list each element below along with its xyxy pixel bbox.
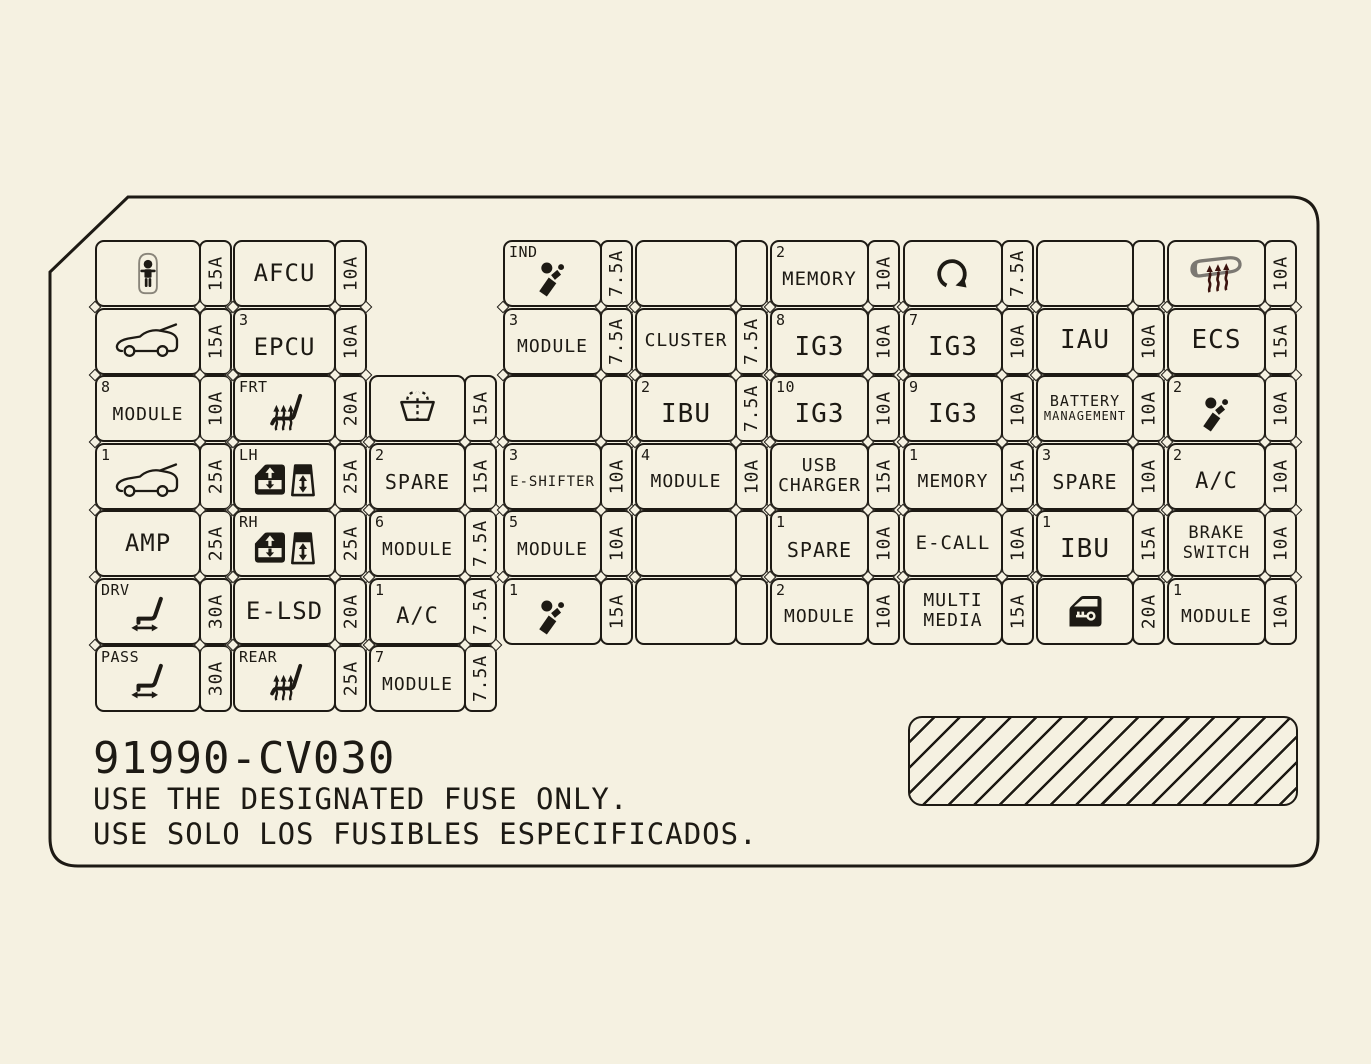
fuse-slot-r1c1: [95, 240, 201, 307]
fuse-amp-r6c2: 20A: [334, 578, 367, 645]
fuse-prefix: 2: [776, 243, 786, 261]
fuse-amp-r6c1: 30A: [199, 578, 232, 645]
airbag-icon: [1169, 377, 1264, 440]
fuse-slot-r5c2: RH: [233, 510, 336, 577]
fuse-label-line: BATTERY: [1050, 393, 1120, 410]
fuse-label: SPARE: [371, 445, 464, 508]
fuse-amp-r4c9: 10A: [1264, 443, 1297, 510]
fuse-amp-r3c5: 7.5A: [735, 375, 768, 442]
fuse-label-line: SWITCH: [1183, 544, 1250, 563]
fuse-prefix: 1: [1042, 513, 1052, 531]
fuse-label-line: MODULE: [382, 675, 453, 695]
fuse-amp-r5c1: 25A: [199, 510, 232, 577]
fuse-prefix: IND: [509, 243, 538, 261]
fuse-prefix: 3: [1042, 446, 1052, 464]
fuse-amp-value: 25A: [340, 526, 361, 562]
fuse-slot-r1c6: 2MEMORY: [770, 240, 869, 307]
fuse-prefix: 10: [776, 378, 795, 396]
fuse-amp-r3c1: 10A: [199, 375, 232, 442]
fuse-prefix: 1: [509, 581, 519, 599]
fuse-amp-value: 7.5A: [470, 520, 491, 567]
fuse-amp-value: 7.5A: [606, 250, 627, 297]
fuse-amp-value: 10A: [873, 256, 894, 292]
fuse-slot-r2c7: 7IG3: [903, 308, 1003, 375]
car-tailgate-icon: [97, 445, 199, 508]
fuse-prefix: LH: [239, 446, 258, 464]
fuse-amp-r4c6: 15A: [867, 443, 900, 510]
fuse-label: SPARE: [1038, 445, 1132, 508]
fuse-slot-r5c9: BRAKESWITCH: [1167, 510, 1266, 577]
fuse-label-line: E-CALL: [916, 533, 991, 554]
fuse-slot-r1c2: AFCU: [233, 240, 336, 307]
fuse-prefix: 7: [375, 648, 385, 666]
fuse-label: USBCHARGER: [772, 445, 867, 508]
fuse-amp-r7c3: 7.5A: [464, 645, 497, 712]
fuse-amp-value: 15A: [205, 323, 226, 359]
fuse-amp-r4c2: 25A: [334, 443, 367, 510]
fuse-slot-r4c5: 4MODULE: [635, 443, 737, 510]
fuse-label-line: IBU: [1060, 535, 1110, 564]
fuse-label-line: CHARGER: [778, 476, 861, 496]
fuse-label-line: E-SHIFTER: [510, 475, 595, 491]
fuse-label: IG3: [905, 377, 1001, 440]
fuse-amp-r2c5: 7.5A: [735, 308, 768, 375]
fuse-label-line: IG3: [928, 400, 978, 429]
fuse-amp-value: 15A: [1270, 323, 1291, 359]
fuse-slot-r6c9: 1MODULE: [1167, 578, 1266, 645]
hatched-placeholder: [908, 716, 1298, 806]
fuse-amp-r5c9: 10A: [1264, 510, 1297, 577]
fuse-label: IBU: [637, 377, 735, 440]
fuse-label: ECS: [1169, 310, 1264, 373]
fuse-amp-r4c4: 10A: [600, 443, 633, 510]
fuse-slot-r3c2: FRT: [233, 375, 336, 442]
fuse-label: IG3: [772, 310, 867, 373]
fuse-label: AMP: [97, 512, 199, 575]
fuse-slot-r5c7: E-CALL: [903, 510, 1003, 577]
fuse-slot-r3c5: 2IBU: [635, 375, 737, 442]
fuse-slot-r1c4: IND: [503, 240, 602, 307]
fuse-label: MODULE: [772, 580, 867, 643]
fuse-amp-value: 7.5A: [470, 587, 491, 634]
notice-es: USE SOLO LOS FUSIBLES ESPECIFICADOS.: [93, 817, 758, 851]
fuse-slot-r5c8: 1IBU: [1036, 510, 1134, 577]
fuse-slot-empty-r6c5: [635, 578, 737, 645]
fuse-amp-r3c6: 10A: [867, 375, 900, 442]
fuse-label: MODULE: [505, 512, 600, 575]
fuse-amp-r4c8: 10A: [1132, 443, 1165, 510]
fuse-slot-r7c1: PASS: [95, 645, 201, 712]
fuse-label: A/C: [371, 580, 464, 643]
fuse-prefix: 8: [776, 311, 786, 329]
fuse-amp-r3c2: 20A: [334, 375, 367, 442]
fuse-slot-r7c3: 7MODULE: [369, 645, 466, 712]
fuse-label: IG3: [905, 310, 1001, 373]
notice-en: USE THE DESIGNATED FUSE ONLY.: [93, 782, 628, 816]
door-key-icon: [1038, 580, 1132, 643]
fuse-box-diagram: 91990-CV030 USE THE DESIGNATED FUSE ONLY…: [0, 0, 1371, 1064]
fuse-slot-r6c1: DRV: [95, 578, 201, 645]
fuse-amp-r5c3: 7.5A: [464, 510, 497, 577]
heated-mirror-icon: [1169, 242, 1264, 305]
fuse-slot-r4c7: 1MEMORY: [903, 443, 1003, 510]
fuse-label-line: SPARE: [385, 471, 450, 493]
fuse-prefix: 2: [641, 378, 651, 396]
fuse-amp-r5c8: 15A: [1132, 510, 1165, 577]
fuse-slot-r4c9: 2A/C: [1167, 443, 1266, 510]
fuse-label-line: A/C: [1195, 470, 1238, 495]
fuse-amp-value: 10A: [340, 256, 361, 292]
fuse-amp-r2c2: 10A: [334, 308, 367, 375]
fuse-label-line: MEMORY: [782, 269, 857, 290]
fuse-amp-value: 7.5A: [606, 317, 627, 364]
fuse-prefix: 1: [1173, 581, 1183, 599]
fuse-amp-value: 15A: [606, 593, 627, 629]
fuse-slot-r6c6: 2MODULE: [770, 578, 869, 645]
fuse-prefix: 3: [239, 311, 249, 329]
fuse-label: A/C: [1169, 445, 1264, 508]
part-number: 91990-CV030: [93, 733, 395, 784]
fuse-amp-r4c1: 25A: [199, 443, 232, 510]
fuse-label-line: IBU: [661, 400, 711, 429]
fuse-slot-r4c8: 3SPARE: [1036, 443, 1134, 510]
fuse-slot-r3c3: [369, 375, 466, 442]
fuse-amp-value: 25A: [340, 661, 361, 697]
fuse-slot-r1c7: [903, 240, 1003, 307]
fuse-label-line: MEMORY: [917, 472, 988, 492]
rotation-icon: [905, 242, 1001, 305]
fuse-amp-value: 10A: [1007, 526, 1028, 562]
fuse-amp-value: 15A: [470, 391, 491, 427]
fuse-label-line: MODULE: [112, 405, 183, 425]
fuse-amp-value: 15A: [470, 458, 491, 494]
fuse-amp-value: 15A: [873, 458, 894, 494]
fuse-label-line: A/C: [396, 605, 439, 630]
fuse-prefix: 2: [776, 581, 786, 599]
fuse-slot-r3c1: 8MODULE: [95, 375, 201, 442]
fuse-amp-value: 10A: [873, 593, 894, 629]
fuse-amp-r1c4: 7.5A: [600, 240, 633, 307]
fuse-label: E-LSD: [235, 580, 334, 643]
fuse-amp-value: 10A: [606, 526, 627, 562]
fuse-label-line: IAU: [1060, 326, 1110, 355]
fuse-amp-value: 25A: [340, 458, 361, 494]
fuse-amp-value: 10A: [1138, 391, 1159, 427]
fuse-slot-r6c3: 1A/C: [369, 578, 466, 645]
fuse-label-line: MANAGEMENT: [1044, 410, 1126, 423]
fuse-label: E-CALL: [905, 512, 1001, 575]
fuse-label: MODULE: [371, 647, 464, 710]
fuse-label-line: AMP: [125, 530, 171, 557]
fuse-amp-r3c7: 10A: [1001, 375, 1034, 442]
fuse-amp-value: 15A: [1138, 526, 1159, 562]
fuse-prefix: 2: [1173, 378, 1183, 396]
fuse-amp-r3c9: 10A: [1264, 375, 1297, 442]
fuse-amp-r3c3: 15A: [464, 375, 497, 442]
fuse-slot-empty-r5c5: [635, 510, 737, 577]
fuse-slot-r4c6: USBCHARGER: [770, 443, 869, 510]
fuse-label-line: MODULE: [382, 540, 453, 560]
fuse-slot-r3c8: BATTERYMANAGEMENT: [1036, 375, 1134, 442]
fuse-amp-value: 30A: [205, 661, 226, 697]
fuse-label-line: IG3: [795, 333, 845, 362]
fuse-prefix: 1: [375, 581, 385, 599]
fuse-label-line: SPARE: [1052, 471, 1117, 493]
fuse-amp-r6c9: 10A: [1264, 578, 1297, 645]
fuse-slot-r6c7: MULTIMEDIA: [903, 578, 1003, 645]
fuse-prefix: 1: [776, 513, 786, 531]
fuse-slot-r5c3: 6MODULE: [369, 510, 466, 577]
fuse-amp-value: 25A: [205, 526, 226, 562]
fuse-label-line: MODULE: [517, 337, 588, 357]
fuse-amp-r6c8: 20A: [1132, 578, 1165, 645]
fuse-amp-value: 10A: [1007, 323, 1028, 359]
fuse-amp-r3c8: 10A: [1132, 375, 1165, 442]
fuse-prefix: 5: [509, 513, 519, 531]
fuse-amp-r5c6: 10A: [867, 510, 900, 577]
fuse-amp-value: 20A: [1138, 593, 1159, 629]
fuse-amp-r1c6: 10A: [867, 240, 900, 307]
fuse-amp-value: 10A: [1270, 526, 1291, 562]
fuse-amp-value: 7.5A: [470, 655, 491, 702]
fuse-amp-value: 10A: [1270, 593, 1291, 629]
fuse-prefix: 1: [909, 446, 919, 464]
fuse-slot-r6c8: [1036, 578, 1134, 645]
fuse-label: IAU: [1038, 310, 1132, 373]
fuse-amp-r4c3: 15A: [464, 443, 497, 510]
fuse-amp-r6c4: 15A: [600, 578, 633, 645]
fuse-amp-value: 10A: [873, 391, 894, 427]
fuse-label: MODULE: [637, 445, 735, 508]
fuse-slot-r4c2: LH: [233, 443, 336, 510]
fuse-amp-r5c5: [735, 510, 768, 577]
fuse-amp-value: 10A: [1270, 391, 1291, 427]
fuse-amp-r2c6: 10A: [867, 308, 900, 375]
fuse-slot-r5c4: 5MODULE: [503, 510, 602, 577]
fuse-prefix: 8: [101, 378, 111, 396]
fuse-amp-value: 25A: [205, 458, 226, 494]
fuse-amp-value: 15A: [205, 256, 226, 292]
fuse-slot-r1c9: [1167, 240, 1266, 307]
fuse-label-line: MODULE: [784, 607, 855, 627]
fuse-label-line: AFCU: [254, 260, 316, 287]
fuse-prefix: DRV: [101, 581, 130, 599]
fuse-amp-r6c6: 10A: [867, 578, 900, 645]
fuse-amp-r6c3: 7.5A: [464, 578, 497, 645]
fuse-amp-r5c2: 25A: [334, 510, 367, 577]
fuse-amp-value: 7.5A: [741, 385, 762, 432]
fuse-label-line: MODULE: [650, 472, 721, 492]
fuse-amp-value: 15A: [1007, 593, 1028, 629]
fuse-amp-r4c7: 15A: [1001, 443, 1034, 510]
fuse-label: MODULE: [97, 377, 199, 440]
fuse-label-line: BRAKE: [1188, 524, 1244, 543]
fuse-prefix: 2: [375, 446, 385, 464]
fuse-label: IBU: [1038, 512, 1132, 575]
fuse-amp-r3c4: [600, 375, 633, 442]
fuse-amp-value: 10A: [1138, 323, 1159, 359]
car-tailgate-icon: [97, 310, 199, 373]
fuse-slot-r5c6: 1SPARE: [770, 510, 869, 577]
fuse-label: MULTIMEDIA: [905, 580, 1001, 643]
fuse-label: EPCU: [235, 310, 334, 373]
fuse-slot-r3c7: 9IG3: [903, 375, 1003, 442]
fuse-label: BATTERYMANAGEMENT: [1038, 377, 1132, 440]
fuse-slot-r7c2: REAR: [233, 645, 336, 712]
fuse-amp-value: 7.5A: [1007, 250, 1028, 297]
child-lock-icon: [97, 242, 199, 305]
fuse-slot-r2c4: 3MODULE: [503, 308, 602, 375]
fuse-label-line: MEDIA: [923, 611, 982, 631]
fuse-prefix: 6: [375, 513, 385, 531]
fuse-amp-r1c2: 10A: [334, 240, 367, 307]
fuse-label-line: EPCU: [254, 334, 316, 361]
fuse-amp-value: 30A: [205, 593, 226, 629]
fuse-label-line: ECS: [1192, 326, 1242, 355]
fuse-amp-r2c7: 10A: [1001, 308, 1034, 375]
fuse-amp-value: 10A: [205, 391, 226, 427]
fuse-prefix: 3: [509, 446, 519, 464]
fuse-amp-r2c4: 7.5A: [600, 308, 633, 375]
fuse-amp-r1c9: 10A: [1264, 240, 1297, 307]
fuse-slot-r6c4: 1: [503, 578, 602, 645]
fuse-label: MEMORY: [905, 445, 1001, 508]
fuse-label: AFCU: [235, 242, 334, 305]
fuse-label-line: USB: [802, 456, 838, 476]
fuse-amp-value: 20A: [340, 391, 361, 427]
fuse-amp-value: 10A: [873, 323, 894, 359]
fuse-amp-value: 10A: [1270, 458, 1291, 494]
fuse-label: MODULE: [505, 310, 600, 373]
fuse-amp-r4c5: 10A: [735, 443, 768, 510]
fuse-amp-r5c4: 10A: [600, 510, 633, 577]
fuse-amp-value: 20A: [340, 593, 361, 629]
fuse-label-line: MODULE: [517, 540, 588, 560]
windshield-washer-icon: [371, 377, 464, 440]
fuse-amp-value: 10A: [1138, 458, 1159, 494]
fuse-label: MEMORY: [772, 242, 867, 305]
fuse-slot-empty-r1c5: [635, 240, 737, 307]
fuse-amp-value: 10A: [1270, 256, 1291, 292]
fuse-label: E-SHIFTER: [505, 445, 600, 508]
fuse-amp-value: 10A: [340, 323, 361, 359]
fuse-amp-r1c5: [735, 240, 768, 307]
fuse-amp-r2c8: 10A: [1132, 308, 1165, 375]
fuse-slot-empty-r3c4: [503, 375, 602, 442]
fuse-slot-r2c9: ECS: [1167, 308, 1266, 375]
fuse-label-line: MODULE: [1181, 607, 1252, 627]
fuse-slot-r6c2: E-LSD: [233, 578, 336, 645]
fuse-label-line: E-LSD: [246, 598, 323, 625]
fuse-amp-r2c9: 15A: [1264, 308, 1297, 375]
fuse-slot-r4c1: 1: [95, 443, 201, 510]
fuse-prefix: RH: [239, 513, 258, 531]
fuse-slot-r4c4: 3E-SHIFTER: [503, 443, 602, 510]
fuse-label: MODULE: [371, 512, 464, 575]
airbag-icon: [505, 580, 600, 643]
fuse-prefix: 2: [1173, 446, 1183, 464]
fuse-amp-r1c1: 15A: [199, 240, 232, 307]
fuse-amp-value: 15A: [1007, 458, 1028, 494]
fuse-amp-r1c7: 7.5A: [1001, 240, 1034, 307]
fuse-label: BRAKESWITCH: [1169, 512, 1264, 575]
fuse-slot-r3c6: 10IG3: [770, 375, 869, 442]
fuse-prefix: 7: [909, 311, 919, 329]
fuse-prefix: 9: [909, 378, 919, 396]
fuse-slot-r2c2: 3EPCU: [233, 308, 336, 375]
fuse-slot-r3c9: 2: [1167, 375, 1266, 442]
fuse-label-line: CLUSTER: [645, 331, 728, 351]
fuse-amp-value: 10A: [606, 458, 627, 494]
fuse-slot-r5c1: AMP: [95, 510, 201, 577]
fuse-label-line: MULTI: [923, 591, 982, 611]
fuse-amp-value: 10A: [741, 458, 762, 494]
fuse-amp-r7c2: 25A: [334, 645, 367, 712]
fuse-slot-r2c8: IAU: [1036, 308, 1134, 375]
fuse-amp-value: 10A: [1007, 391, 1028, 427]
fuse-label: MODULE: [1169, 580, 1264, 643]
fuse-label: CLUSTER: [637, 310, 735, 373]
fuse-amp-r1c8: [1132, 240, 1165, 307]
fuse-prefix: 3: [509, 311, 519, 329]
fuse-label-line: IG3: [795, 400, 845, 429]
fuse-amp-value: 10A: [873, 526, 894, 562]
fuse-label: SPARE: [772, 512, 867, 575]
fuse-slot-empty-r1c8: [1036, 240, 1134, 307]
fuse-label-line: IG3: [928, 333, 978, 362]
fuse-prefix: 4: [641, 446, 651, 464]
fuse-prefix: 1: [101, 446, 111, 464]
fuse-amp-r5c7: 10A: [1001, 510, 1034, 577]
fuse-slot-r2c5: CLUSTER: [635, 308, 737, 375]
fuse-label-line: SPARE: [787, 539, 852, 561]
fuse-amp-r6c5: [735, 578, 768, 645]
fuse-slot-r4c3: 2SPARE: [369, 443, 466, 510]
fuse-amp-r6c7: 15A: [1001, 578, 1034, 645]
fuse-prefix: FRT: [239, 378, 268, 396]
fuse-prefix: PASS: [101, 648, 139, 666]
fuse-slot-r2c1: [95, 308, 201, 375]
fuse-prefix: REAR: [239, 648, 277, 666]
fuse-amp-r2c1: 15A: [199, 308, 232, 375]
fuse-amp-value: 7.5A: [741, 317, 762, 364]
fuse-amp-r7c1: 30A: [199, 645, 232, 712]
fuse-slot-r2c6: 8IG3: [770, 308, 869, 375]
